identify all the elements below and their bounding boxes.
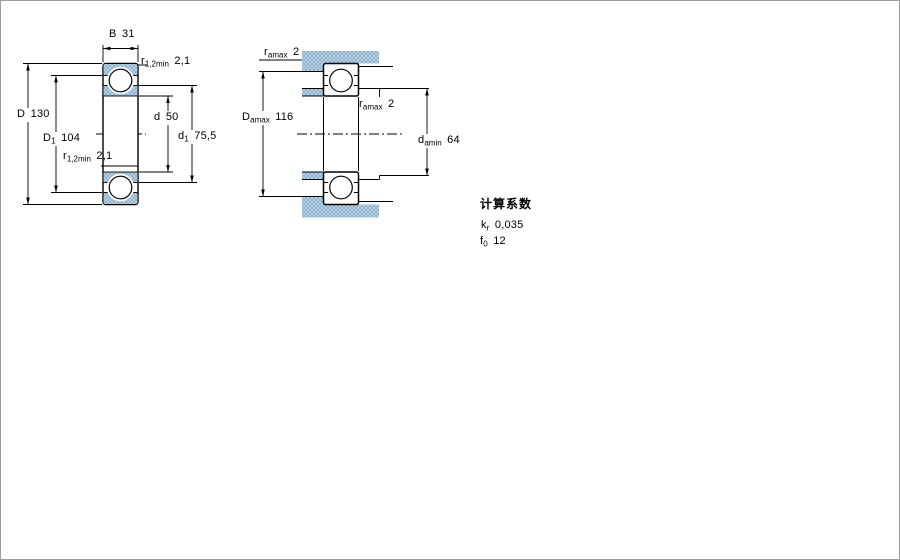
dim-label-ramax-mid: ramax2 bbox=[359, 98, 394, 112]
housing-top bbox=[302, 51, 379, 64]
dim-label-B: B31 bbox=[108, 28, 136, 42]
ball-top bbox=[330, 69, 353, 92]
calculation-factors-heading: 计算系数 bbox=[480, 197, 532, 211]
housing-shoulder-top bbox=[302, 64, 324, 72]
dim-label-damin: damin64 bbox=[417, 134, 461, 148]
factor-f0: f012 bbox=[480, 235, 506, 249]
abutment-dimensions-figure bbox=[259, 51, 429, 218]
dim-label-ramax-top: ramax2 bbox=[264, 46, 299, 60]
housing-shoulder-bottom bbox=[302, 197, 324, 205]
dim-label-d: d50 bbox=[153, 111, 179, 125]
dim-label-d1: d175,5 bbox=[177, 130, 218, 144]
technical-drawing bbox=[1, 1, 900, 560]
bearing-drawing-page: B31 r1,2min2,1 D130 D1104 r1,2min2,1 d50… bbox=[0, 0, 900, 560]
ball-bottom bbox=[109, 176, 132, 199]
dim-label-Damax: Damax116 bbox=[241, 111, 294, 125]
bearing-cross-section-figure bbox=[23, 45, 197, 205]
extension-lines bbox=[259, 72, 302, 197]
factor-kr: kr0,035 bbox=[481, 219, 523, 233]
dim-label-r12-top: r1,2min2,1 bbox=[141, 55, 190, 69]
dim-label-D1: D1104 bbox=[42, 132, 81, 146]
shaft-shoulder-bottom bbox=[302, 172, 324, 180]
housing-bottom bbox=[302, 205, 379, 218]
ball-top bbox=[109, 69, 132, 92]
dim-label-D: D130 bbox=[16, 108, 51, 122]
shaft-shoulder-top bbox=[302, 89, 324, 97]
dim-label-r12-mid: r1,2min2,1 bbox=[63, 150, 112, 164]
ball-bottom bbox=[330, 176, 353, 199]
